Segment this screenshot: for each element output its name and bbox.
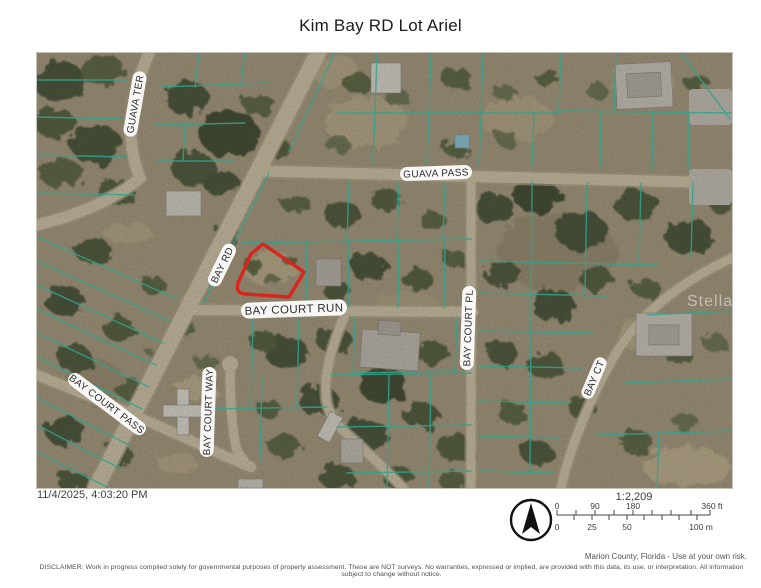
- svg-text:25: 25: [587, 522, 597, 532]
- svg-text:360 ft: 360 ft: [701, 501, 723, 511]
- aerial-map-svg: StellarMLS GUAVA TER GUAVA PASS BAY RD B…: [37, 53, 732, 488]
- svg-text:0: 0: [555, 501, 560, 511]
- watermark: StellarMLS: [687, 293, 732, 310]
- page-title: Kim Bay RD Lot Ariel: [0, 16, 761, 36]
- aerial-map: StellarMLS GUAVA TER GUAVA PASS BAY RD B…: [36, 52, 733, 489]
- svg-text:180: 180: [626, 501, 640, 511]
- street-label-guava-pass: GUAVA PASS: [400, 165, 472, 182]
- scale-ticks: [557, 510, 710, 520]
- svg-text:0: 0: [555, 522, 560, 532]
- disclaimer: DISCLAIMER: Work in progress compiled so…: [30, 564, 753, 578]
- svg-text:50: 50: [622, 522, 632, 532]
- svg-text:GUAVA PASS: GUAVA PASS: [403, 167, 469, 180]
- attribution: Marion County, Florida - Use at your own…: [585, 552, 747, 561]
- timestamp: 11/4/2025, 4:03:20 PM: [37, 489, 148, 501]
- scale-bar: 1:2,209 0 90 180 360 ft 0 25 50 100 m: [549, 488, 749, 536]
- svg-text:100 m: 100 m: [689, 522, 713, 532]
- svg-text:90: 90: [590, 501, 600, 511]
- street-label-bay-court-pl: BAY COURT PL: [460, 286, 477, 370]
